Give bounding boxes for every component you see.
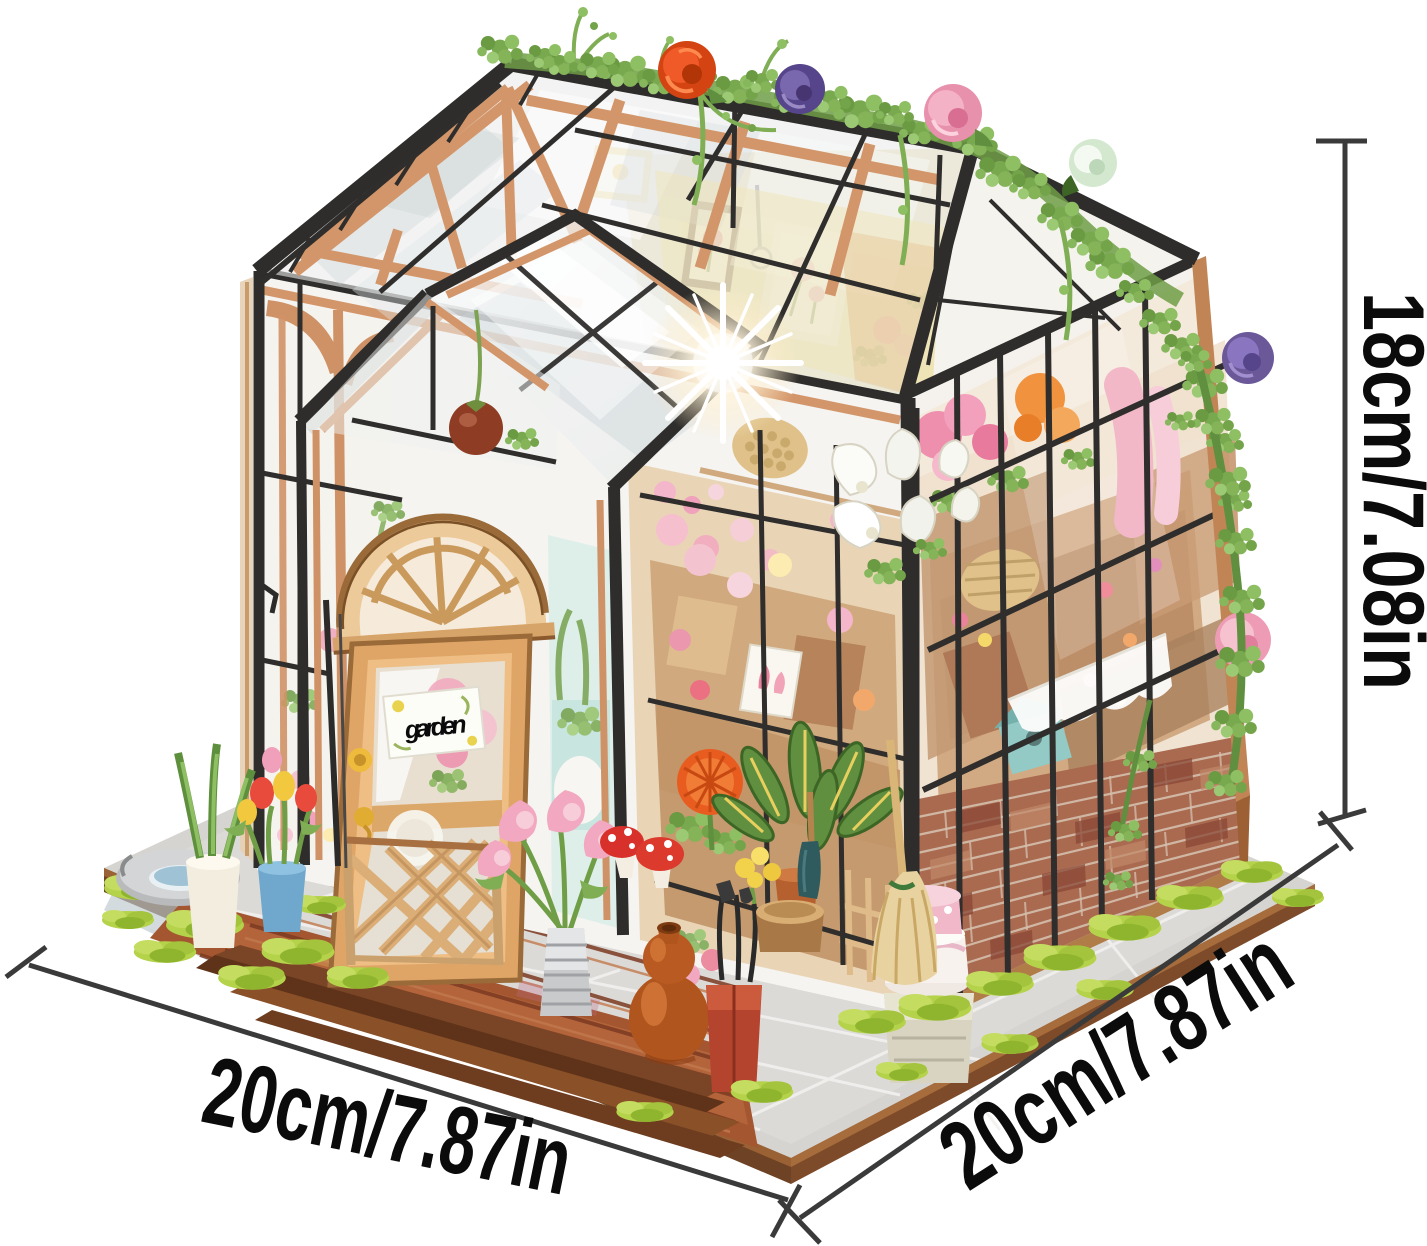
svg-text:18cm/7.08in: 18cm/7.08in — [1345, 292, 1427, 690]
